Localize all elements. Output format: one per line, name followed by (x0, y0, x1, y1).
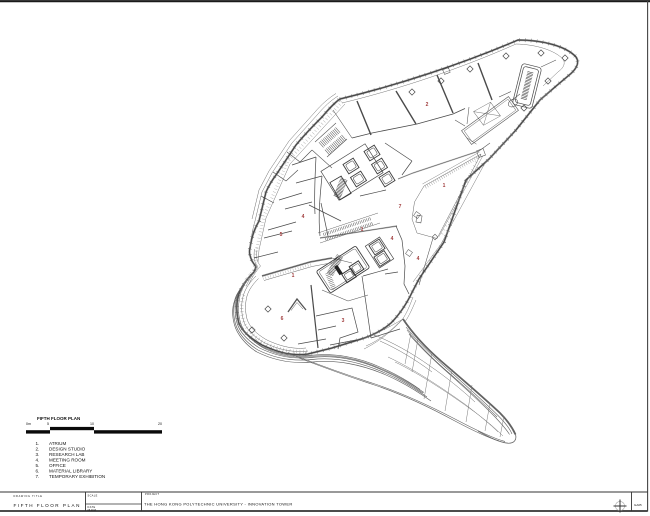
svg-text:4: 4 (417, 256, 420, 262)
svg-text:MATERIAL LIBRARY: MATERIAL LIBRARY (49, 469, 92, 474)
svg-text:0m: 0m (26, 422, 31, 426)
svg-text:10: 10 (90, 422, 94, 426)
svg-text:ATRIUM: ATRIUM (49, 441, 66, 446)
svg-text:SCALE: SCALE (88, 495, 98, 498)
svg-text:OFFICE: OFFICE (49, 463, 66, 468)
svg-text:RESEARCH LAB: RESEARCH LAB (49, 452, 85, 457)
svg-text:6.: 6. (36, 469, 40, 474)
svg-text:FIFTH FLOOR PLAN: FIFTH FLOOR PLAN (14, 503, 81, 508)
svg-text:4: 4 (302, 214, 305, 220)
svg-text:5: 5 (47, 422, 49, 426)
svg-text:7.: 7. (36, 474, 40, 479)
svg-text:THE HONG KONG POLYTECHNIC UNIV: THE HONG KONG POLYTECHNIC UNIVERSITY - I… (144, 502, 293, 507)
svg-text:TEMPORARY EXHIBITION: TEMPORARY EXHIBITION (49, 474, 105, 479)
svg-text:5.: 5. (36, 463, 40, 468)
svg-text:1: 1 (292, 273, 295, 279)
svg-text:GA05: GA05 (634, 503, 642, 507)
svg-text:2: 2 (426, 102, 429, 108)
svg-text:4.: 4. (36, 457, 40, 462)
svg-text:1: 1 (361, 227, 364, 233)
svg-text:1: 1 (443, 183, 446, 189)
svg-text:PROJECT: PROJECT (145, 493, 160, 496)
svg-text:2.: 2. (36, 446, 40, 451)
svg-text:5: 5 (280, 232, 283, 238)
svg-text:DRAWING TITLE: DRAWING TITLE (14, 495, 43, 498)
svg-text:3.: 3. (36, 452, 40, 457)
svg-text:4: 4 (391, 236, 394, 242)
svg-text:DESIGN STUDIO: DESIGN STUDIO (49, 446, 86, 451)
svg-text:3: 3 (342, 318, 345, 324)
svg-text:20: 20 (158, 422, 162, 426)
svg-text:08.2013: 08.2013 (88, 509, 97, 512)
svg-text:1.: 1. (36, 441, 40, 446)
svg-text:MEETING ROOM: MEETING ROOM (49, 457, 86, 462)
svg-text:FIFTH FLOOR PLAN: FIFTH FLOOR PLAN (37, 416, 80, 421)
svg-text:7: 7 (399, 204, 402, 210)
svg-text:6: 6 (281, 316, 284, 322)
